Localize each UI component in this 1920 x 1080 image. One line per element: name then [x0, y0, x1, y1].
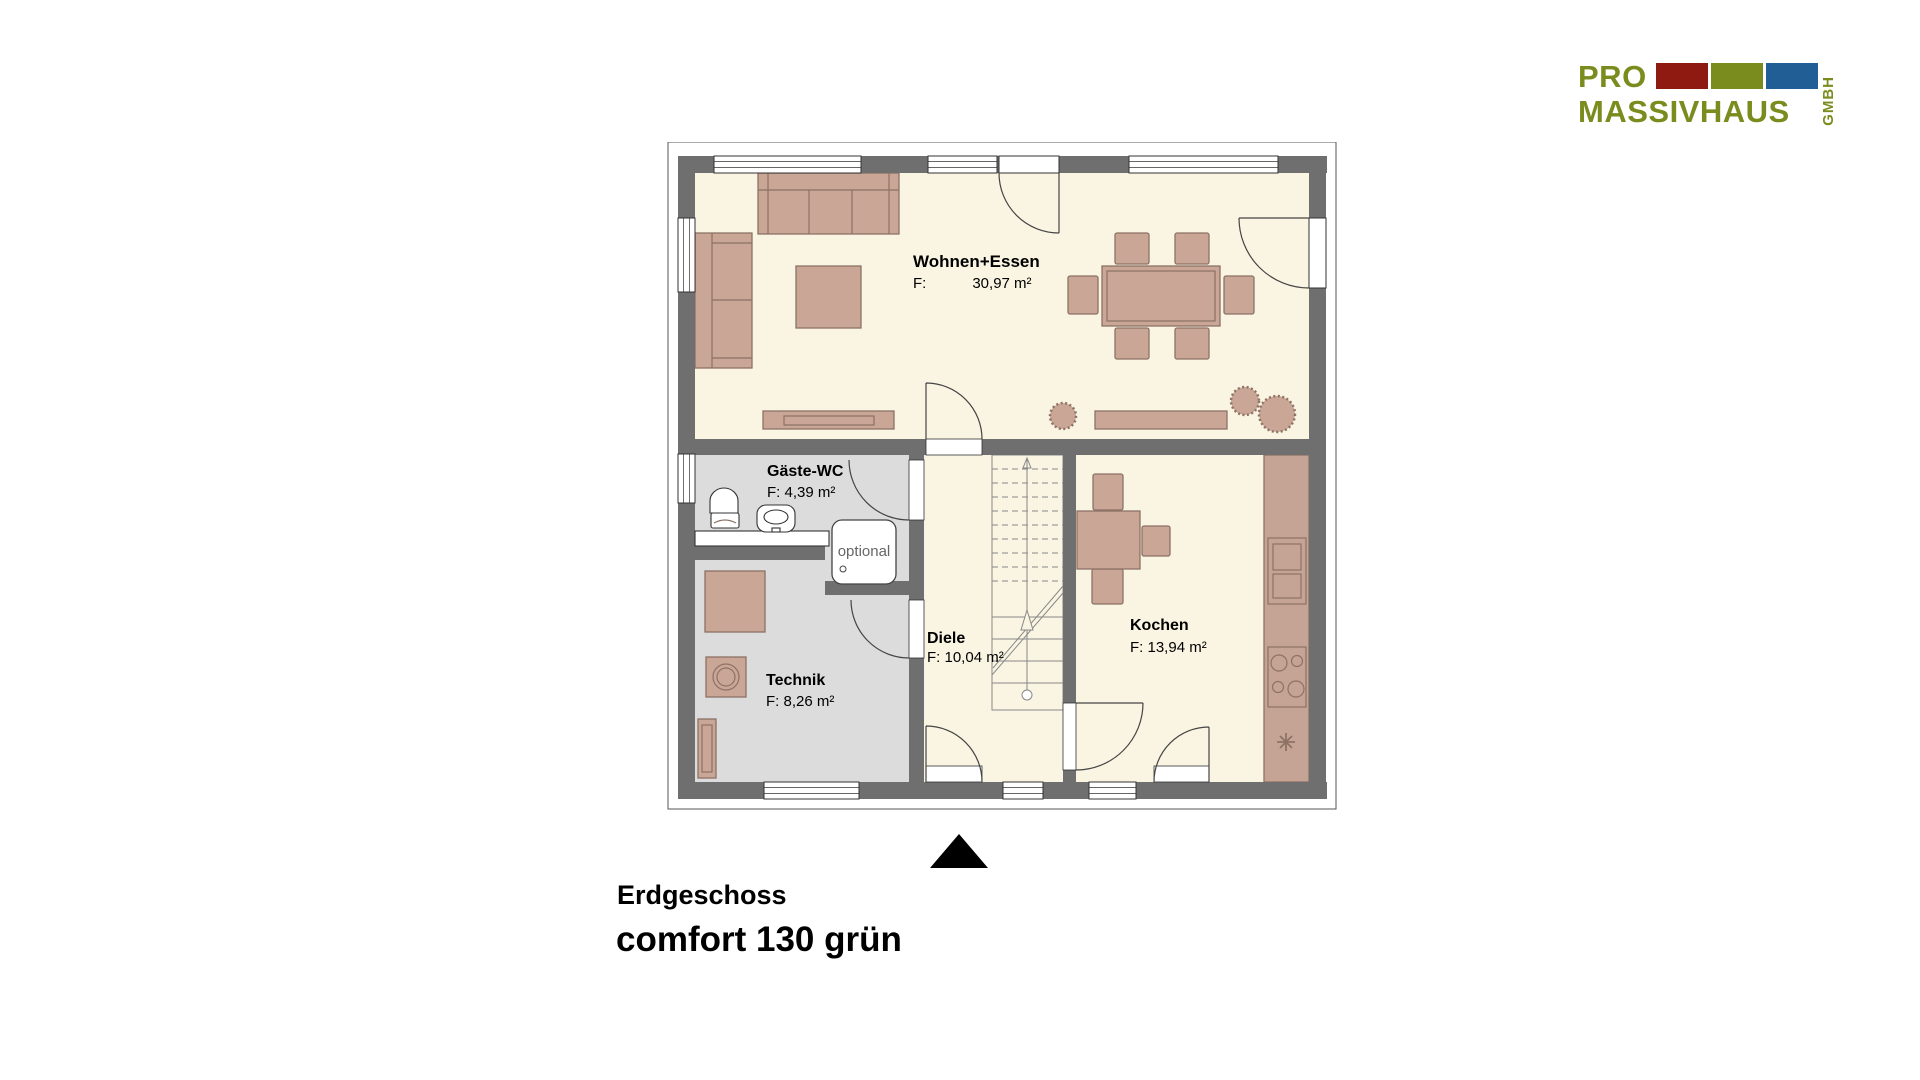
dining-chair	[1224, 276, 1254, 314]
coffee-table	[796, 266, 861, 328]
logo-text-pro: PRO	[1578, 61, 1647, 92]
page: Wohnen+Essen F:30,97 m² Gäste-WC F: 4,39…	[0, 0, 1920, 1080]
dining-chair	[1115, 328, 1149, 359]
washing-machine	[706, 657, 746, 697]
window-left-wc	[678, 454, 695, 503]
window-left-living	[678, 218, 695, 292]
dining-chair	[1175, 233, 1209, 264]
window-top-mid	[928, 156, 997, 173]
wall-leftcol	[909, 455, 924, 460]
dining-chair	[1115, 233, 1149, 264]
dining-table	[1102, 266, 1220, 326]
floor-title: Erdgeschoss	[617, 882, 787, 909]
sideboard-left	[763, 411, 894, 429]
window-top-right	[1129, 156, 1278, 173]
sofa-horizontal	[758, 173, 899, 234]
vanity-ledge	[695, 531, 829, 546]
wall-diele-kochen-stub	[1063, 770, 1076, 782]
floor-diele	[924, 455, 1063, 782]
stair-start-marker	[1022, 690, 1032, 700]
area-gaeste-wc: F: 4,39 m²	[767, 485, 835, 500]
kitchen-chair	[1092, 569, 1123, 604]
sofa-vertical	[695, 233, 752, 368]
area-wohnen-essen: F:30,97 m²	[913, 276, 1032, 291]
model-title: comfort 130 grün	[616, 922, 902, 957]
label-shower-optional: optional	[832, 544, 896, 559]
area-diele: F: 10,04 m²	[927, 650, 1004, 665]
label-gaeste-wc: Gäste-WC	[767, 464, 843, 480]
company-logo: PRO MASSIVHAUS GMBH	[1578, 62, 1868, 144]
door-terrace-top	[999, 156, 1059, 173]
wall-wc-technik	[695, 546, 825, 560]
wall-living-south-b	[982, 439, 1309, 455]
toilet	[710, 488, 739, 528]
kitchen-table	[1077, 511, 1140, 569]
plant	[1231, 387, 1259, 415]
door-diele-kochen	[1063, 703, 1076, 770]
technik-unit	[705, 571, 765, 632]
washbasin	[757, 505, 795, 532]
logo-block-red-icon	[1656, 63, 1708, 89]
door-living-diele	[926, 439, 982, 455]
area-kochen: F: 13,94 m²	[1130, 640, 1207, 655]
door-technik	[909, 600, 924, 658]
dining-chair	[1175, 328, 1209, 359]
logo-block-green-icon	[1711, 63, 1763, 89]
label-wohnen-essen: Wohnen+Essen	[913, 253, 1040, 270]
dining-chair	[1068, 276, 1098, 314]
kitchen-counter	[1264, 455, 1309, 782]
wall-diele-kochen	[1063, 455, 1076, 703]
kitchen-chair	[1142, 526, 1170, 556]
area-value: 30,97 m²	[972, 275, 1031, 292]
logo-block-blue-icon	[1766, 63, 1818, 89]
door-kochen-bottom	[1154, 766, 1209, 782]
label-kochen: Kochen	[1130, 618, 1189, 634]
window-bottom-technik	[764, 782, 859, 799]
wall-leftcol	[909, 658, 924, 782]
logo-text-gmbh-wrap: GMBH	[1820, 62, 1837, 140]
window-bottom-kochen	[1089, 782, 1136, 799]
logo-text-gmbh: GMBH	[1820, 76, 1837, 126]
entrance-arrow-icon	[930, 834, 988, 868]
plant	[1050, 403, 1076, 429]
window-bottom-diele	[1003, 782, 1043, 799]
kitchen-chair	[1093, 474, 1123, 510]
label-technik: Technik	[766, 673, 825, 689]
window-top-left	[714, 156, 861, 173]
floorplan-svg	[664, 142, 1342, 818]
label-diele: Diele	[927, 631, 965, 647]
wall-living-south-a	[695, 439, 926, 455]
radiator	[698, 719, 716, 778]
door-wc	[909, 460, 924, 520]
sideboard-right	[1095, 411, 1227, 429]
door-entrance	[926, 766, 982, 782]
plant	[1259, 396, 1295, 432]
door-terrace-right	[1309, 218, 1326, 288]
area-label: F:	[913, 275, 926, 292]
floorplan: Wohnen+Essen F:30,97 m² Gäste-WC F: 4,39…	[664, 142, 1342, 818]
area-technik: F: 8,26 m²	[766, 694, 834, 709]
